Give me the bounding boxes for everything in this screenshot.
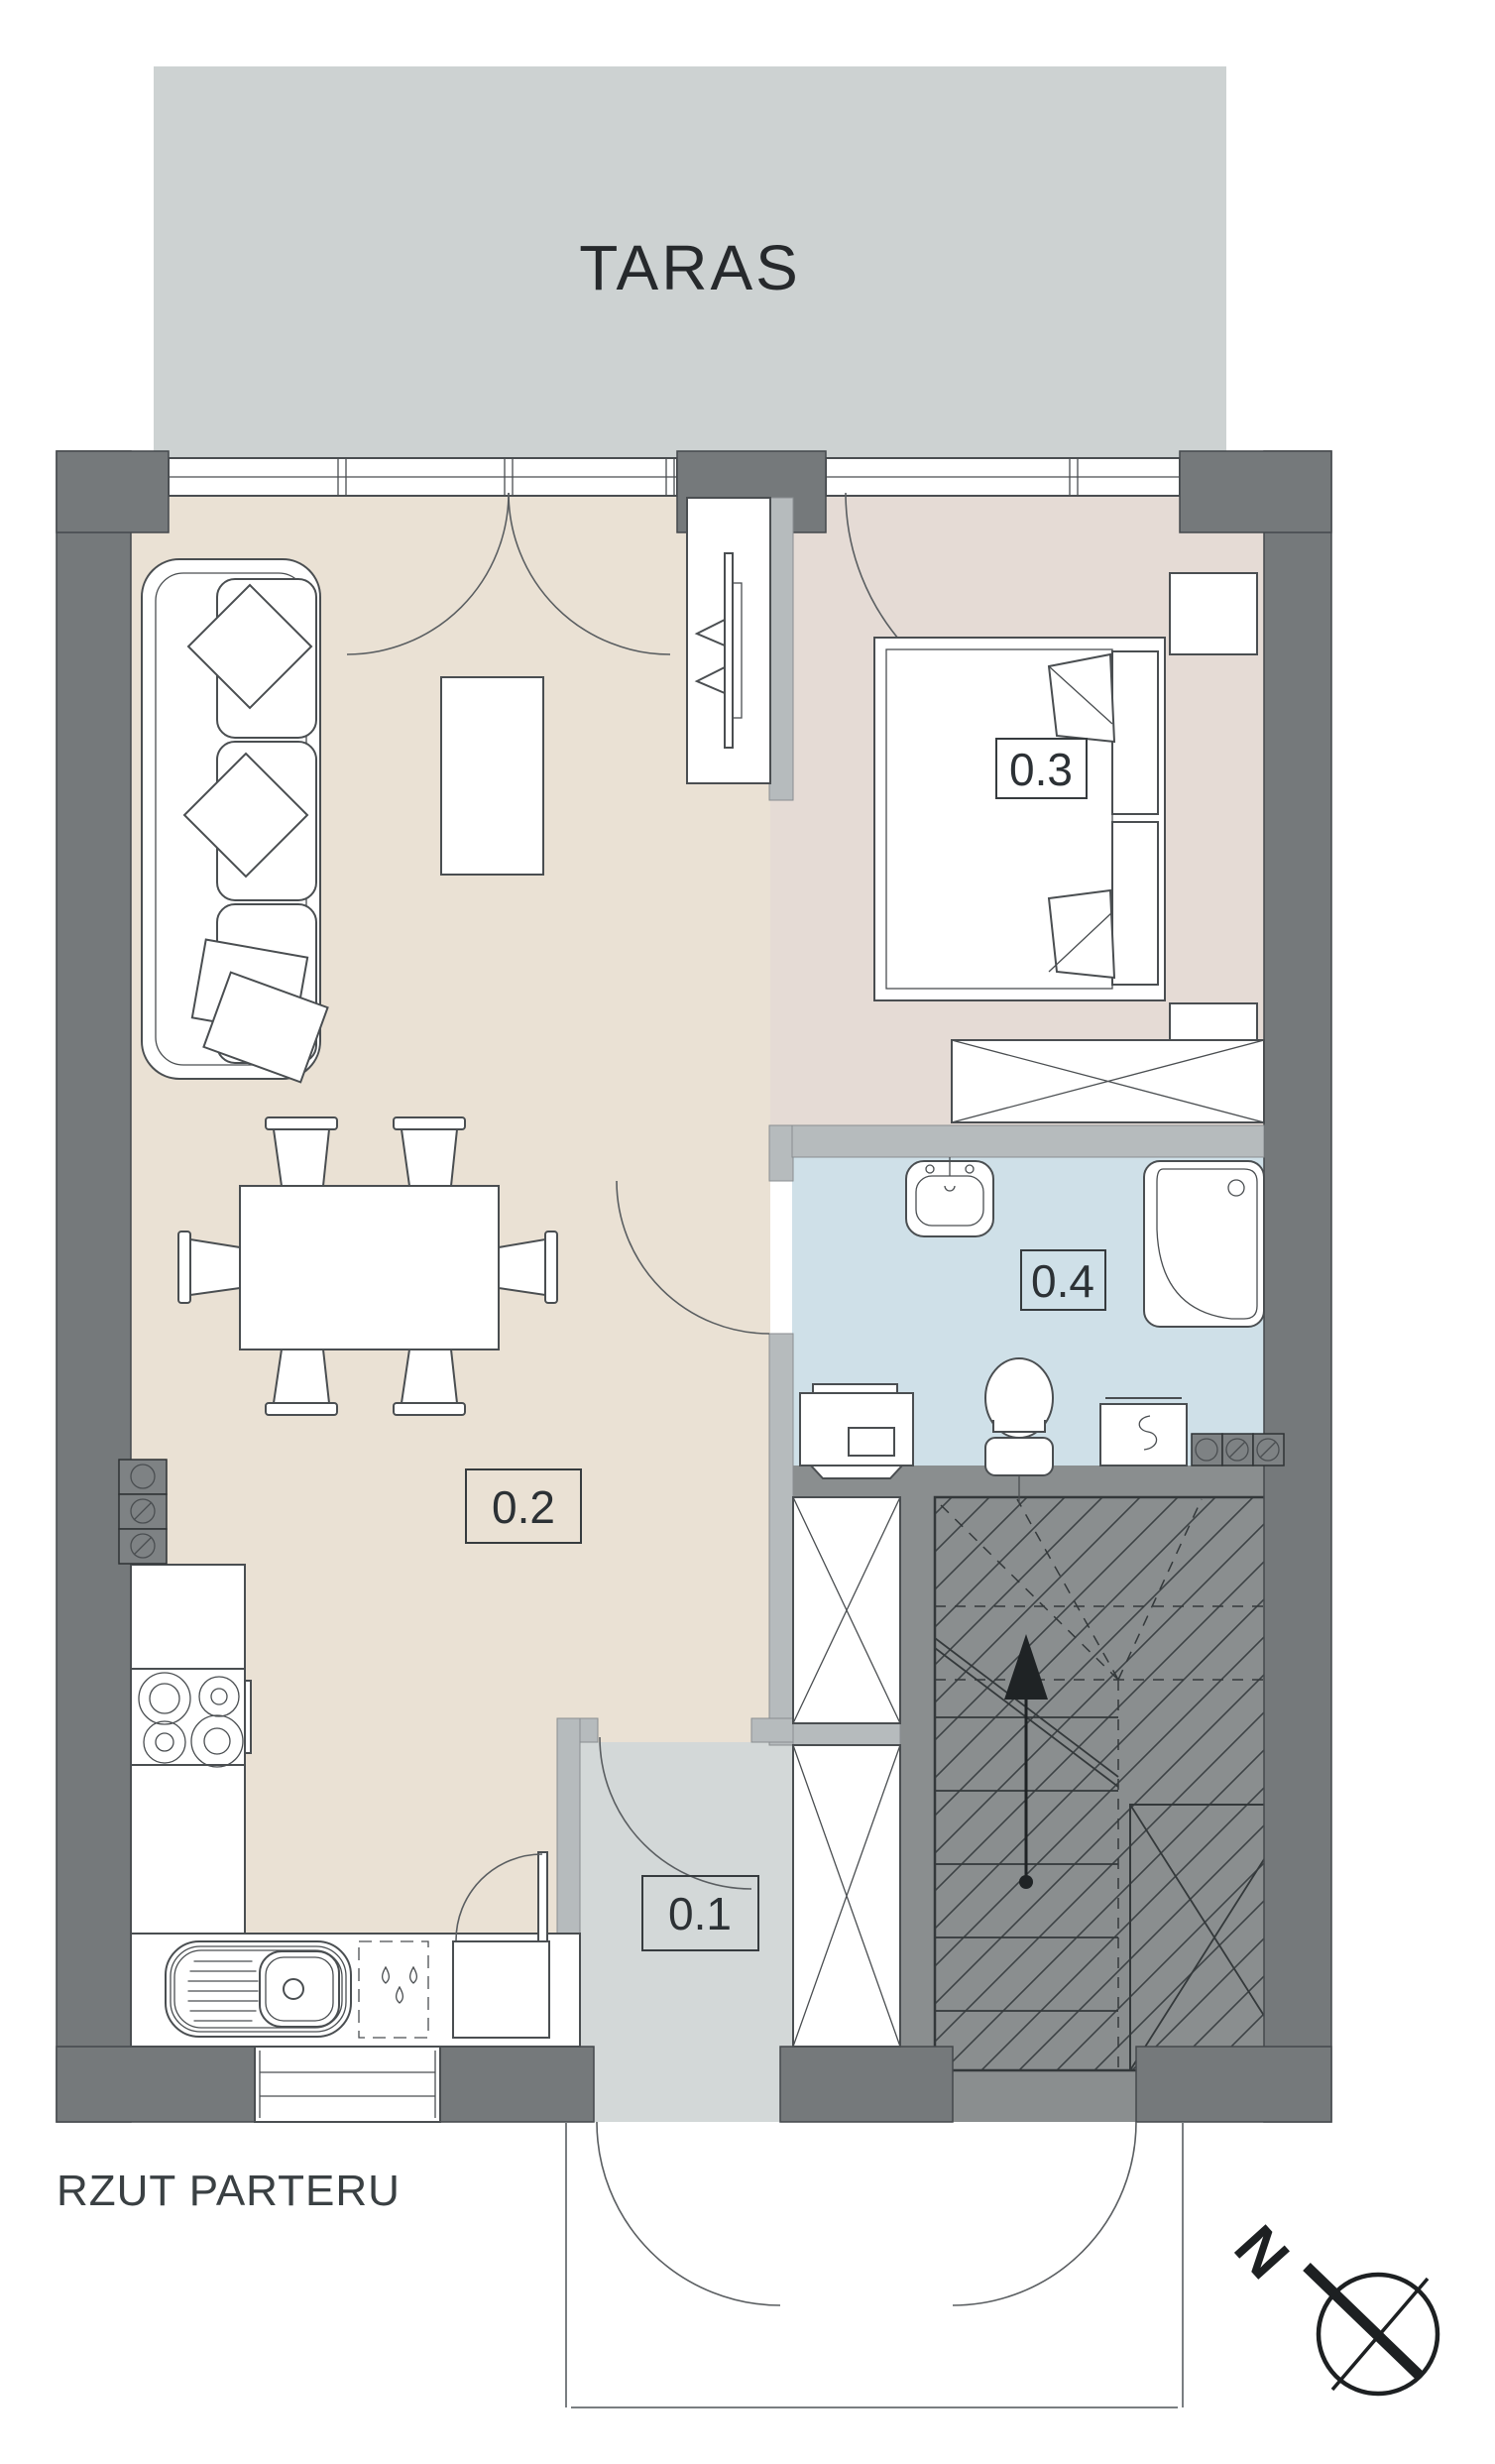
tv bbox=[725, 553, 733, 748]
bedroom-bath-wall bbox=[792, 1125, 1264, 1157]
dining-table bbox=[240, 1186, 499, 1349]
room-label-0.2: 0.2 bbox=[492, 1481, 555, 1533]
kitchen-window bbox=[255, 2047, 440, 2122]
closet-column bbox=[793, 1497, 900, 2047]
pillar-top-left bbox=[57, 451, 169, 532]
floor-plan: TARAS bbox=[0, 0, 1495, 2464]
wall-bottom-2 bbox=[440, 2047, 594, 2122]
coffee-table bbox=[441, 677, 543, 875]
tv-sideboard bbox=[687, 498, 770, 783]
terrace-glazing bbox=[169, 458, 1180, 496]
room-label-0.1: 0.1 bbox=[668, 1888, 732, 1939]
bathroom-sink bbox=[906, 1157, 993, 1236]
terrace: TARAS bbox=[154, 66, 1226, 458]
cabinet-door-leaf bbox=[538, 1852, 547, 1941]
north-compass: N bbox=[1221, 2213, 1437, 2394]
bed-pillow bbox=[1049, 890, 1114, 978]
front-door-swing bbox=[597, 2122, 780, 2305]
page-title: RZUT PARTERU bbox=[57, 2167, 401, 2215]
closet-divider bbox=[793, 1723, 900, 1745]
pillar-top-right bbox=[1180, 451, 1331, 532]
room-label-0.4: 0.4 bbox=[1031, 1255, 1094, 1307]
stove bbox=[131, 1669, 251, 1767]
nightstand bbox=[1170, 573, 1257, 654]
closet-lower bbox=[793, 1745, 900, 2047]
staircase bbox=[935, 1497, 1299, 2070]
hall-wall-stub-right bbox=[751, 1718, 793, 1742]
closet-upper bbox=[793, 1497, 900, 1723]
wall-bottom-3 bbox=[780, 2047, 953, 2122]
terrace-label: TARAS bbox=[579, 232, 801, 303]
bedroom-wardrobe bbox=[952, 1040, 1264, 1122]
bathroom-duct-shafts bbox=[1192, 1434, 1284, 1466]
wall-right bbox=[1264, 451, 1331, 2122]
wall-bottom-1 bbox=[57, 2047, 255, 2122]
water-heater bbox=[1100, 1398, 1187, 1466]
north-label: N bbox=[1221, 2213, 1302, 2291]
entrance-porch bbox=[566, 2122, 1183, 2407]
bath-left-wall-bottom bbox=[769, 1334, 793, 1745]
tv-wall bbox=[769, 498, 793, 800]
bed-pillow bbox=[1049, 654, 1114, 742]
hall-entry-threshold bbox=[594, 2047, 780, 2122]
bath-left-wall-top bbox=[769, 1125, 793, 1181]
sofa bbox=[142, 559, 328, 1082]
stair-exit-door-swing bbox=[953, 2122, 1136, 2305]
wall-left bbox=[57, 451, 131, 2122]
bed bbox=[874, 638, 1165, 1000]
room-label-0.3: 0.3 bbox=[1009, 744, 1073, 795]
kitchen-duct-shafts bbox=[119, 1460, 167, 1564]
wall-bottom-4 bbox=[1136, 2047, 1331, 2122]
corner-bathtub bbox=[1144, 1161, 1264, 1327]
washing-machine bbox=[800, 1384, 913, 1478]
